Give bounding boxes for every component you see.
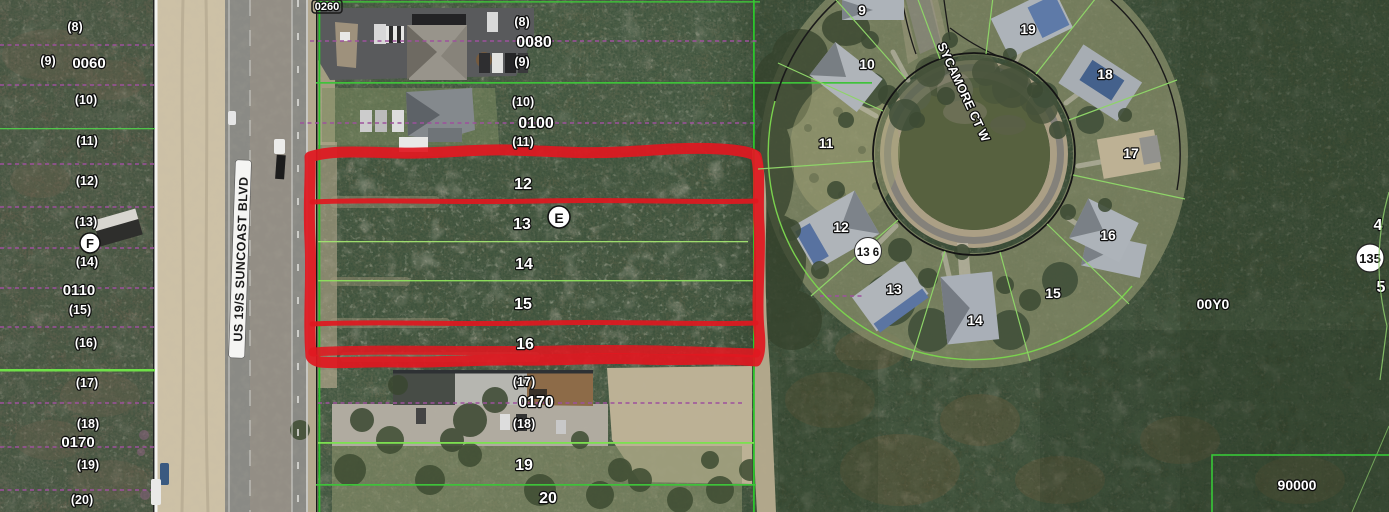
svg-text:(19): (19) xyxy=(77,458,99,472)
svg-text:0100: 0100 xyxy=(518,115,554,132)
svg-text:13 6: 13 6 xyxy=(857,247,879,259)
svg-text:(12): (12) xyxy=(76,174,98,188)
svg-text:(8): (8) xyxy=(67,20,82,34)
svg-text:12: 12 xyxy=(833,219,849,235)
svg-text:135: 135 xyxy=(1359,251,1381,266)
svg-text:00Y0: 00Y0 xyxy=(1197,296,1230,312)
svg-text:(13): (13) xyxy=(75,215,97,229)
svg-text:F: F xyxy=(86,236,94,251)
svg-text:(10): (10) xyxy=(512,95,534,109)
svg-text:90000: 90000 xyxy=(1278,477,1317,493)
svg-text:(9): (9) xyxy=(514,55,529,69)
svg-text:0080: 0080 xyxy=(516,34,552,51)
svg-text:(20): (20) xyxy=(71,493,93,507)
svg-text:16: 16 xyxy=(516,336,534,353)
svg-text:0060: 0060 xyxy=(72,55,105,72)
svg-text:17: 17 xyxy=(1123,145,1139,161)
svg-text:0170: 0170 xyxy=(61,434,94,451)
svg-text:0170: 0170 xyxy=(518,394,554,411)
svg-text:15: 15 xyxy=(514,296,532,313)
svg-text:(14): (14) xyxy=(76,255,98,269)
svg-text:(10): (10) xyxy=(75,93,97,107)
svg-text:(18): (18) xyxy=(513,417,535,431)
svg-text:(11): (11) xyxy=(512,135,534,149)
svg-text:(8): (8) xyxy=(514,15,529,29)
svg-text:13: 13 xyxy=(886,281,902,297)
svg-text:(17): (17) xyxy=(513,375,535,389)
svg-text:(11): (11) xyxy=(76,134,98,148)
svg-text:(17): (17) xyxy=(76,376,98,390)
svg-text:0110: 0110 xyxy=(63,282,96,299)
svg-text:10: 10 xyxy=(859,56,875,72)
svg-text:12: 12 xyxy=(514,176,532,193)
svg-text:14: 14 xyxy=(515,256,533,273)
svg-text:19: 19 xyxy=(515,457,533,474)
svg-text:(9): (9) xyxy=(40,54,55,68)
svg-text:16: 16 xyxy=(1100,227,1116,243)
svg-text:18: 18 xyxy=(1097,66,1113,82)
svg-text:E: E xyxy=(554,210,563,226)
svg-text:9: 9 xyxy=(858,2,866,18)
svg-text:15: 15 xyxy=(1045,285,1061,301)
svg-text:19: 19 xyxy=(1020,21,1036,37)
svg-text:20: 20 xyxy=(539,490,557,507)
svg-text:13: 13 xyxy=(513,216,531,233)
svg-text:(15): (15) xyxy=(69,303,91,317)
svg-text:0260: 0260 xyxy=(315,1,339,13)
svg-text:14: 14 xyxy=(967,312,983,328)
svg-text:(16): (16) xyxy=(75,336,97,350)
svg-text:(18): (18) xyxy=(77,417,99,431)
svg-text:11: 11 xyxy=(819,135,834,151)
